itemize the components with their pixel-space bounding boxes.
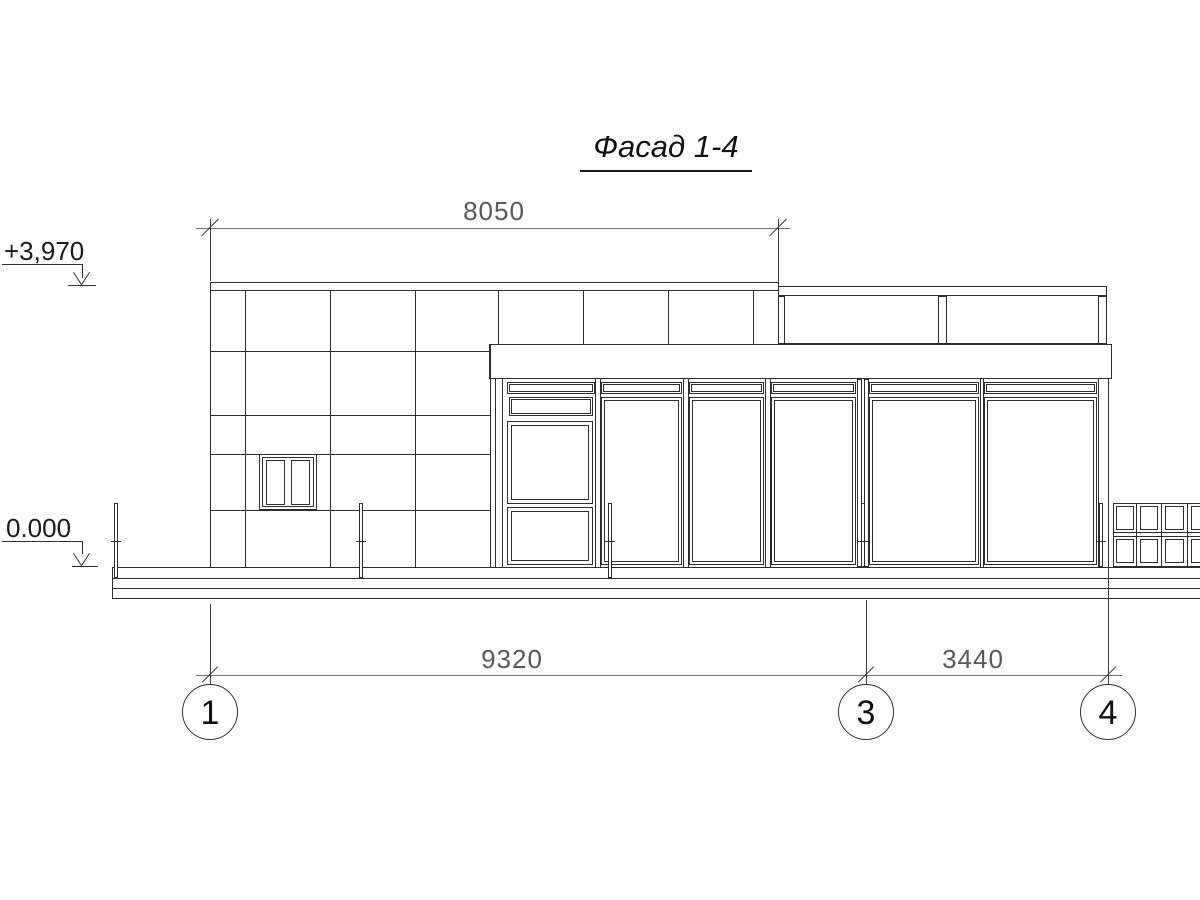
door-panel <box>511 511 589 561</box>
fence-post-line <box>1187 503 1188 567</box>
door-panel <box>511 425 589 500</box>
fence-post-tick <box>605 541 615 542</box>
tile-joint-line <box>583 290 584 344</box>
extension-line <box>210 219 211 281</box>
mullion <box>683 379 684 567</box>
transom-window <box>509 384 593 392</box>
storefront-column <box>1108 379 1109 567</box>
dimension-line <box>196 675 1122 676</box>
fence-cell <box>1116 539 1134 563</box>
glass-pane <box>987 400 1094 562</box>
storefront-column <box>495 379 496 567</box>
fence-post-tick <box>1096 541 1106 542</box>
railing-post <box>1098 296 1107 344</box>
dimension-line <box>196 228 790 229</box>
fence-post-line <box>1161 503 1162 567</box>
fence-post-tick <box>356 541 366 542</box>
slab-left-edge <box>112 567 113 598</box>
window-pane <box>291 460 310 505</box>
fence-cell <box>1140 539 1158 563</box>
ground-line <box>112 567 1200 568</box>
glass-pane <box>774 400 853 562</box>
transom-window <box>773 384 854 392</box>
elevation-value: 0.000 <box>6 513 71 544</box>
tile-joint-line <box>245 290 246 567</box>
leader-line <box>82 541 83 554</box>
tile-joint-line <box>498 290 499 344</box>
fence-cell <box>1140 506 1158 530</box>
leader-line <box>82 264 83 278</box>
leader-line <box>2 264 83 265</box>
down-arrow-icon <box>81 553 90 566</box>
fence-cell <box>1165 539 1184 563</box>
tile-joint-line <box>210 415 490 416</box>
level-tick <box>72 566 98 567</box>
fence-cell <box>1165 506 1184 530</box>
mullion <box>980 379 981 567</box>
dimension-value: 3440 <box>923 644 1023 675</box>
dimension-value: 8050 <box>444 196 544 227</box>
elevation-value: +3,970 <box>4 236 84 267</box>
window-pane <box>266 460 285 505</box>
dimension-value: 9320 <box>462 644 562 675</box>
fence-post-line <box>1136 503 1137 567</box>
storefront-column <box>502 379 503 567</box>
transom-window <box>691 384 762 392</box>
tile-joint-line <box>753 290 754 344</box>
railing-top-rail <box>778 286 1107 296</box>
extension-line <box>778 219 779 285</box>
drawing-title: Фасад 1-4 <box>580 129 752 172</box>
glass-pane <box>604 400 679 562</box>
fence-post <box>861 503 865 567</box>
roof-edge-line <box>210 282 778 283</box>
fascia-band <box>489 344 1112 379</box>
fence-cell <box>1116 506 1134 530</box>
tile-joint-line <box>210 351 490 352</box>
transom-window <box>871 384 977 392</box>
mullion <box>765 379 766 567</box>
slab-line <box>112 598 1200 599</box>
fence-cell <box>1191 506 1200 530</box>
extension-line <box>1108 567 1109 684</box>
transom-window <box>603 384 680 392</box>
fence-post-tick <box>111 541 121 542</box>
tile-joint-line <box>210 510 490 511</box>
slab-line <box>112 588 1200 589</box>
fence-post <box>1099 503 1103 567</box>
railing-post <box>938 296 947 344</box>
level-tick <box>68 285 96 286</box>
facade-drawing: Фасад 1-4 8050 +3,970 0.000 <box>0 0 1200 900</box>
axis-bubble-4: 4 <box>1080 684 1136 740</box>
transom-window <box>511 399 591 414</box>
fence-cell <box>1191 539 1200 563</box>
glass-pane <box>872 400 976 562</box>
tile-joint-line <box>330 290 331 567</box>
leader-line <box>2 541 83 542</box>
tile-joint-line <box>415 290 416 567</box>
roof-edge-line <box>210 290 778 291</box>
axis-bubble-1: 1 <box>182 684 238 740</box>
glass-pane <box>692 400 761 562</box>
slab-line <box>112 578 1200 579</box>
wall-left-edge <box>210 282 211 567</box>
axis-bubble-3: 3 <box>838 684 894 740</box>
tile-joint-line <box>210 454 490 455</box>
mullion <box>595 379 596 567</box>
tile-joint-line <box>668 290 669 344</box>
railing-post <box>778 296 785 344</box>
fence-post-tick <box>858 541 868 542</box>
transom-window <box>986 384 1095 392</box>
